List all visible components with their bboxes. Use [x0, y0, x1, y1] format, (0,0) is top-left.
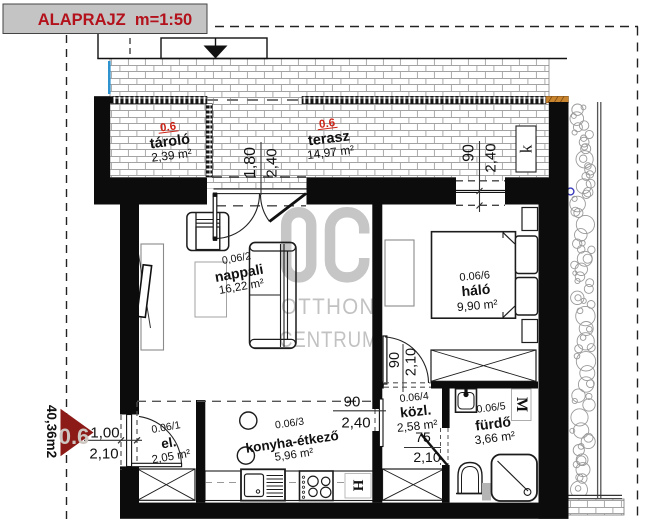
svg-text:M: M	[513, 397, 530, 412]
svg-text:H: H	[350, 480, 366, 492]
svg-text:2,40: 2,40	[264, 148, 281, 177]
svg-text:2,10: 2,10	[89, 446, 118, 463]
svg-text:k: k	[517, 144, 536, 153]
svg-text:OTTHON: OTTHON	[281, 294, 376, 319]
svg-text:el.: el.	[160, 434, 177, 451]
svg-text:háló: háló	[461, 281, 491, 299]
svg-text:40,36m2: 40,36m2	[44, 405, 59, 458]
svg-text:90: 90	[344, 394, 361, 411]
svg-text:90: 90	[387, 352, 403, 368]
svg-text:2,40: 2,40	[341, 415, 370, 432]
svg-text:2,10: 2,10	[404, 348, 420, 376]
svg-text:0.6: 0.6	[59, 424, 90, 449]
svg-text:1,00: 1,00	[90, 425, 119, 442]
svg-text:2,40: 2,40	[483, 143, 500, 172]
svg-text:90: 90	[461, 144, 478, 162]
svg-text:2,10: 2,10	[413, 449, 440, 465]
svg-text:ALAPRAJZ m=1:50: ALAPRAJZ m=1:50	[38, 11, 193, 29]
svg-text:1,80: 1,80	[242, 147, 259, 178]
